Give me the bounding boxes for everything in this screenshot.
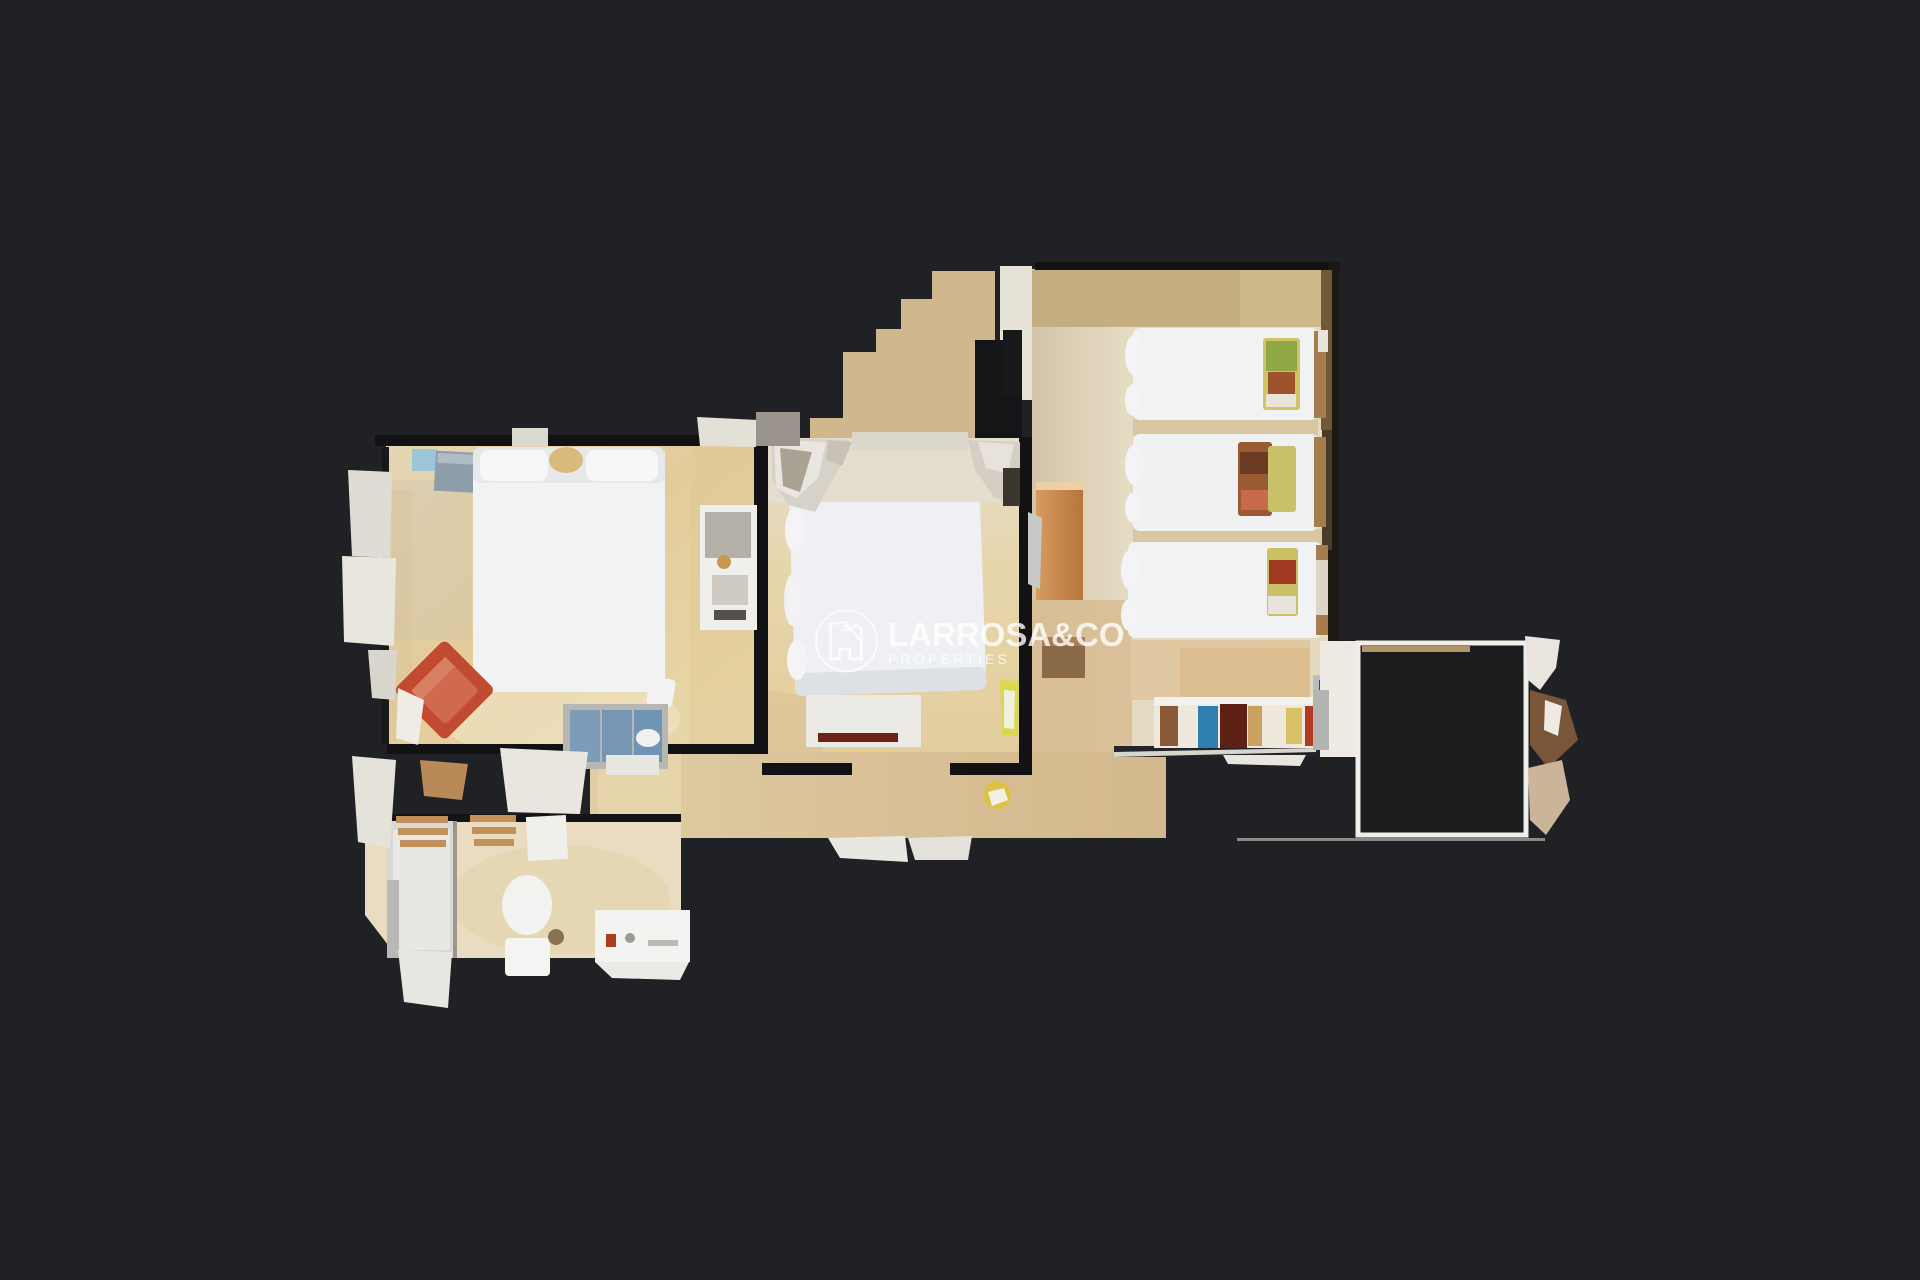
svg-text:LARROSA&CO: LARROSA&CO — [888, 616, 1125, 653]
svg-text:PROPERTIES: PROPERTIES — [888, 651, 1010, 667]
